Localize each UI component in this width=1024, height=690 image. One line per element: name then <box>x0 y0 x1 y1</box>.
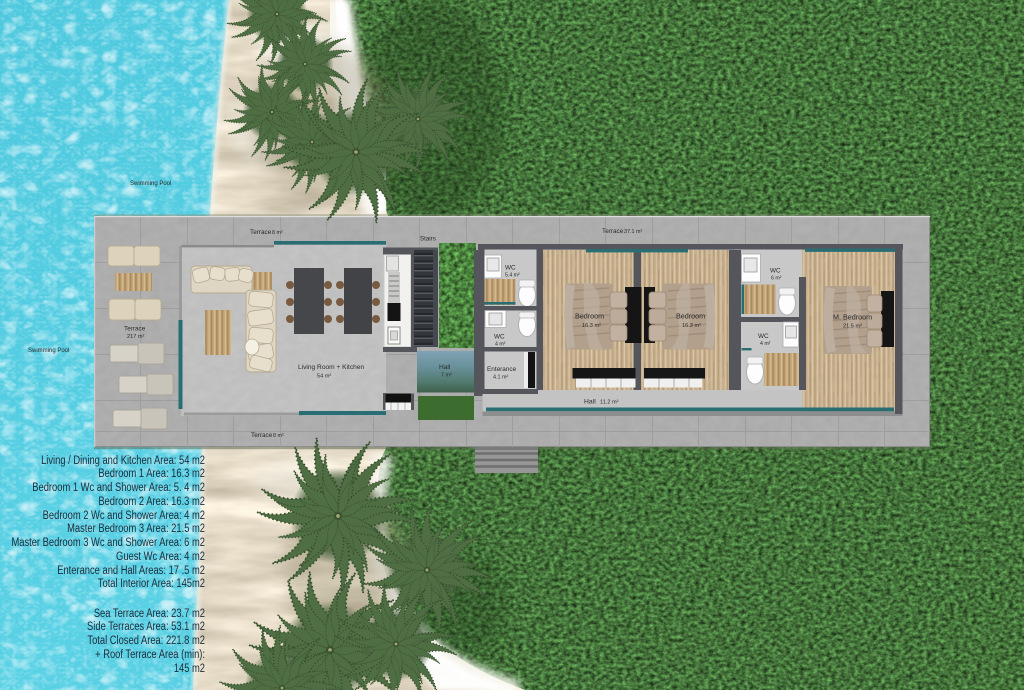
svg-text:16.3 m²: 16.3 m² <box>582 323 601 329</box>
svg-text:Bedroom: Bedroom <box>575 312 604 321</box>
svg-text:6 m²: 6 m² <box>771 276 782 282</box>
svg-text:8 m²: 8 m² <box>273 433 284 439</box>
svg-text:4 m²: 4 m² <box>495 342 506 348</box>
svg-text:8 m²: 8 m² <box>272 230 283 236</box>
svg-text:Terrace: Terrace <box>251 432 273 439</box>
svg-text:Terrace: Terrace <box>124 326 146 333</box>
svg-text:M. Bedroom: M. Bedroom <box>833 313 872 322</box>
svg-text:4.1 m²: 4.1 m² <box>493 375 508 381</box>
svg-text:11.2 m²: 11.2 m² <box>600 400 619 406</box>
svg-text:WC: WC <box>494 334 505 341</box>
svg-text:Hall: Hall <box>584 399 596 406</box>
svg-text:Living Room + Kitchen: Living Room + Kitchen <box>298 364 364 371</box>
svg-text:Terrace: Terrace <box>250 229 272 236</box>
svg-text:Swimming Pool: Swimming Pool <box>28 348 69 354</box>
svg-text:16.3 m²: 16.3 m² <box>682 323 701 329</box>
svg-text:5.4 m²: 5.4 m² <box>505 273 520 279</box>
svg-text:Enterance: Enterance <box>487 366 517 373</box>
svg-text:Hall: Hall <box>439 364 451 371</box>
svg-text:Swimming Pool: Swimming Pool <box>130 181 171 187</box>
svg-text:WC: WC <box>505 265 516 272</box>
svg-text:WC: WC <box>758 333 769 340</box>
svg-text:WC: WC <box>770 268 781 275</box>
svg-text:21.5 m²: 21.5 m² <box>843 324 862 330</box>
svg-text:54 m²: 54 m² <box>317 374 331 380</box>
svg-text:217 m²: 217 m² <box>127 334 145 340</box>
svg-text:4 m²: 4 m² <box>760 341 771 347</box>
svg-text:37.1 m²: 37.1 m² <box>624 229 642 235</box>
svg-text:7 m²: 7 m² <box>441 373 452 379</box>
svg-text:Bedroom: Bedroom <box>676 312 705 321</box>
svg-text:Stairs: Stairs <box>420 236 436 243</box>
svg-text:Terrace: Terrace <box>602 228 624 235</box>
